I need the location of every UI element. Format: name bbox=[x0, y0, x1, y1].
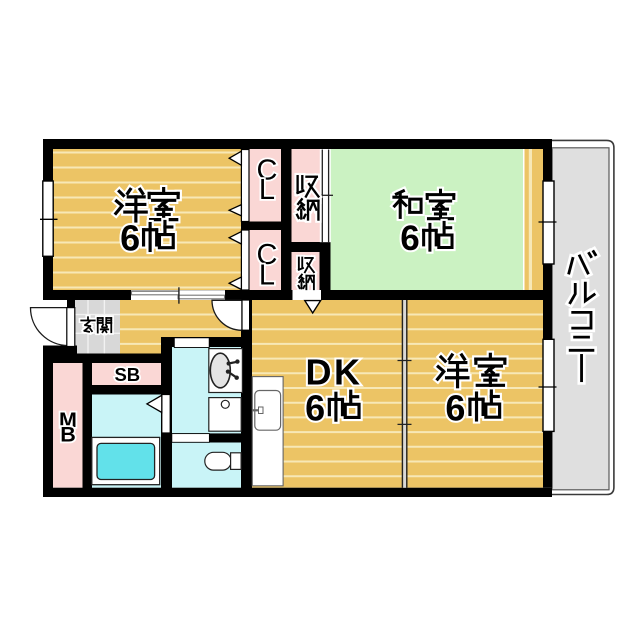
svg-text:SB: SB bbox=[114, 364, 140, 385]
svg-text:6: 6 bbox=[305, 388, 325, 429]
svg-text:6: 6 bbox=[445, 387, 465, 428]
svg-text:B: B bbox=[60, 423, 76, 447]
svg-text:DK: DK bbox=[306, 351, 363, 392]
svg-text:6: 6 bbox=[400, 219, 419, 258]
svg-text:6: 6 bbox=[120, 218, 140, 259]
svg-text:L: L bbox=[259, 174, 275, 206]
svg-text:L: L bbox=[259, 260, 275, 292]
